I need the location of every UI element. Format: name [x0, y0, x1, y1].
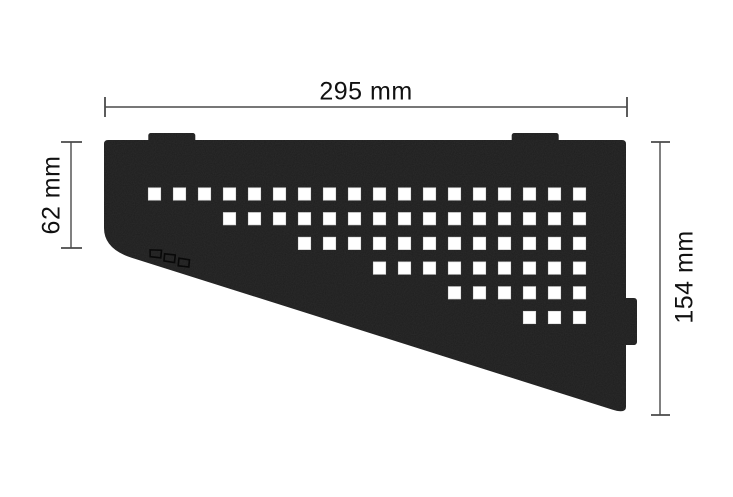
perforation-hole: [273, 213, 285, 225]
perforation-hole: [498, 188, 510, 200]
perforation-hole: [398, 213, 410, 225]
perforation-hole: [448, 188, 460, 200]
perforation-hole: [448, 237, 460, 249]
shelf-body: [95, 125, 645, 425]
perforation-hole: [498, 237, 510, 249]
perforation-hole: [348, 188, 360, 200]
dimension-right-height: [651, 142, 670, 415]
left-height-dimension-label: 62 mm: [38, 156, 67, 235]
perforation-hole: [348, 213, 360, 225]
perforation-hole: [298, 213, 310, 225]
perforation-hole: [573, 213, 585, 225]
perforation-hole: [198, 188, 210, 200]
perforation-hole: [323, 237, 335, 249]
perforation-hole: [523, 188, 535, 200]
perforation-hole: [498, 287, 510, 299]
perforation-hole: [548, 287, 560, 299]
perforation-hole: [248, 188, 260, 200]
perforation-hole: [423, 188, 435, 200]
perforation-hole: [473, 287, 485, 299]
perforation-hole: [473, 188, 485, 200]
perforation-hole: [573, 262, 585, 274]
perforation-hole: [473, 237, 485, 249]
diagram-canvas: [0, 0, 733, 497]
perforation-hole: [448, 262, 460, 274]
metal-texture: [95, 125, 645, 425]
perforation-hole: [448, 213, 460, 225]
perforation-hole: [523, 311, 535, 323]
perforation-hole: [423, 213, 435, 225]
product-dimension-diagram: 295 mm 62 mm 154 mm: [0, 0, 733, 497]
perforation-hole: [423, 262, 435, 274]
perforation-hole: [573, 237, 585, 249]
perforation-hole: [423, 237, 435, 249]
perforation-hole: [373, 213, 385, 225]
perforation-hole: [398, 262, 410, 274]
perforation-hole: [323, 188, 335, 200]
perforation-hole: [548, 262, 560, 274]
perforation-hole: [373, 237, 385, 249]
perforation-hole: [173, 188, 185, 200]
right-height-dimension-label: 154 mm: [671, 230, 700, 323]
perforation-hole: [523, 237, 535, 249]
perforation-hole: [373, 262, 385, 274]
perforation-hole: [298, 237, 310, 249]
perforation-hole: [573, 311, 585, 323]
perforation-hole: [223, 188, 235, 200]
perforation-hole: [473, 213, 485, 225]
width-dimension-label: 295 mm: [319, 78, 412, 107]
perforation-hole: [523, 262, 535, 274]
perforation-hole: [573, 287, 585, 299]
perforation-hole: [498, 262, 510, 274]
perforation-hole: [148, 188, 160, 200]
perforation-hole: [523, 287, 535, 299]
perforation-hole: [498, 213, 510, 225]
perforation-hole: [448, 287, 460, 299]
perforation-hole: [298, 188, 310, 200]
perforation-hole: [323, 213, 335, 225]
perforation-hole: [223, 213, 235, 225]
perforation-hole: [548, 311, 560, 323]
perforation-hole: [548, 188, 560, 200]
perforation-hole: [373, 188, 385, 200]
perforation-hole: [273, 188, 285, 200]
perforation-hole: [548, 213, 560, 225]
perforation-hole: [398, 188, 410, 200]
perforation-hole: [473, 262, 485, 274]
perforation-hole: [523, 213, 535, 225]
perforation-hole: [573, 188, 585, 200]
perforation-hole: [548, 237, 560, 249]
perforation-hole: [398, 237, 410, 249]
perforation-hole: [248, 213, 260, 225]
perforation-hole: [348, 237, 360, 249]
